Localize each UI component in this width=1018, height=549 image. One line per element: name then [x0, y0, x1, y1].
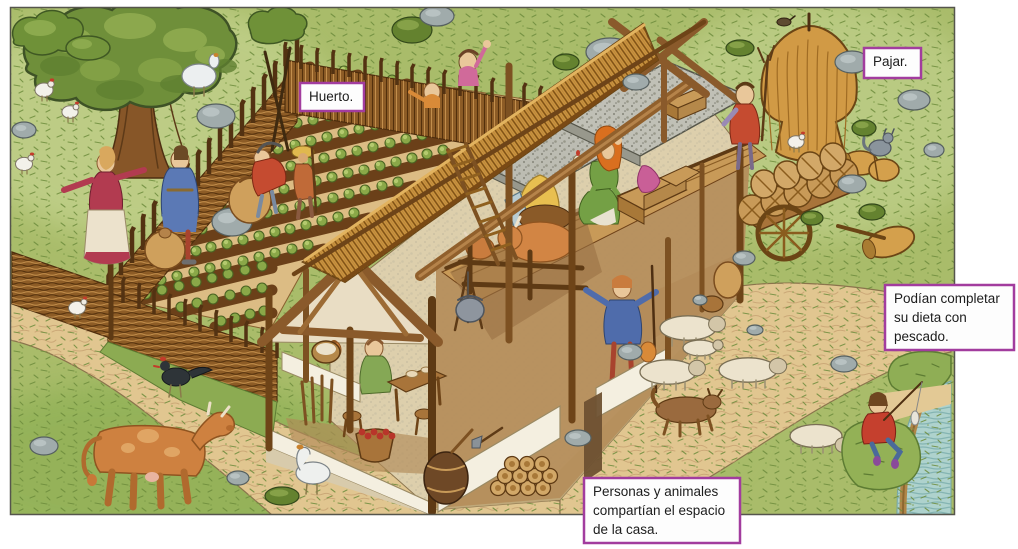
svg-text:Podían completar: Podían completar: [894, 291, 1000, 306]
svg-text:de la casa.: de la casa.: [593, 522, 658, 537]
svg-text:su dieta con: su dieta con: [894, 310, 967, 325]
svg-text:Huerto.: Huerto.: [309, 89, 353, 104]
svg-text:pescado.: pescado.: [894, 329, 949, 344]
svg-text:compartían el espacio: compartían el espacio: [593, 503, 725, 518]
svg-text:Pajar.: Pajar.: [873, 54, 908, 69]
svg-text:Personas y animales: Personas y animales: [593, 484, 719, 499]
